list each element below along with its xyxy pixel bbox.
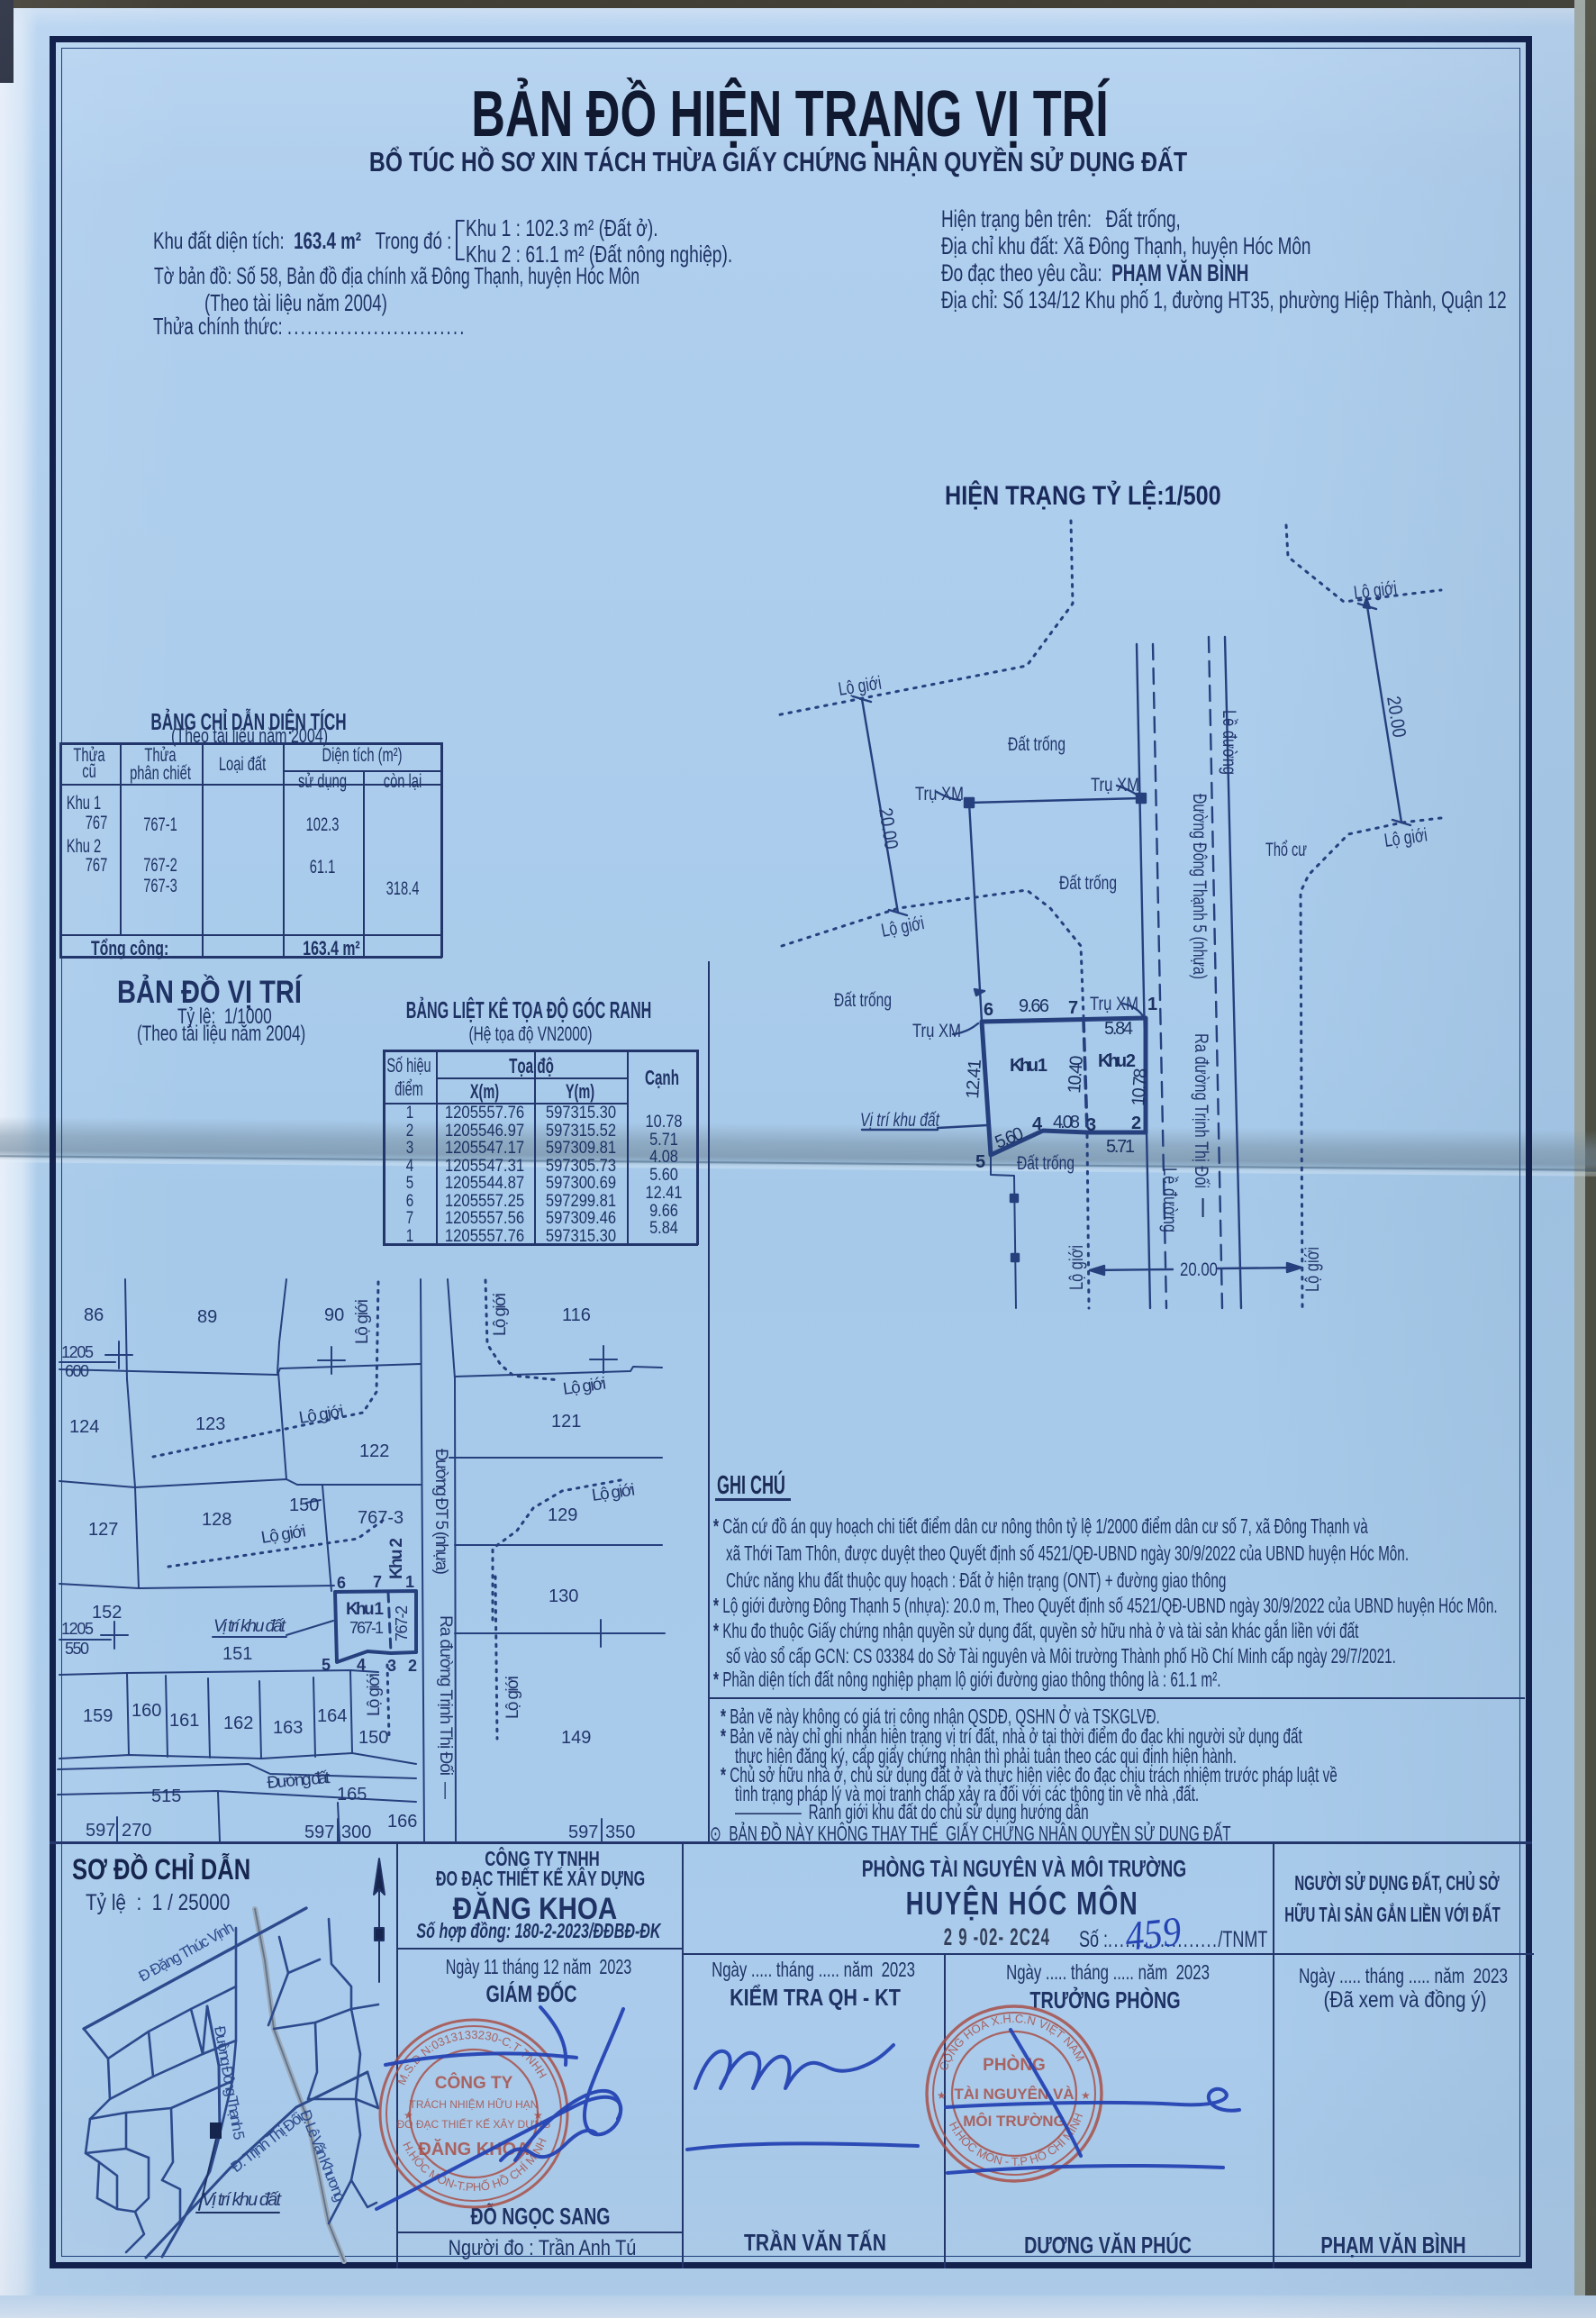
svg-text:4: 4 [357, 1656, 366, 1674]
svg-text:163: 163 [273, 1718, 303, 1738]
svg-text:Khu 1: Khu 1 [346, 1600, 384, 1619]
svg-text:Lộ giới: Lộ giới [353, 1299, 372, 1344]
svg-text:515: 515 [151, 1786, 181, 1806]
svg-text:597: 597 [568, 1823, 598, 1842]
svg-text:Khu 2: Khu 2 [1098, 1051, 1136, 1071]
svg-text:1205: 1205 [61, 1343, 94, 1361]
svg-text:—: — [1193, 1198, 1214, 1217]
svg-text:3: 3 [387, 1657, 396, 1675]
svg-text:128: 128 [202, 1510, 231, 1530]
svg-text:TÀI NGUYÊN VÀ: TÀI NGUYÊN VÀ [954, 2086, 1074, 2103]
svg-text:Khu 1: Khu 1 [1010, 1056, 1047, 1076]
svg-text:Lộ giới: Lộ giới [880, 913, 927, 941]
svg-text:129: 129 [548, 1505, 577, 1525]
svg-text:Vị trí khu đất: Vị trí khu đất [213, 1617, 286, 1636]
svg-text:150: 150 [358, 1728, 388, 1748]
svg-text:12.41: 12.41 [963, 1059, 985, 1099]
svg-text:123: 123 [195, 1414, 225, 1434]
svg-text:Đất trống: Đất trống [1059, 873, 1117, 894]
svg-text:7: 7 [1068, 998, 1078, 1018]
svg-text:Trụ XM: Trụ XM [915, 784, 964, 804]
svg-text:124: 124 [69, 1417, 99, 1437]
svg-text:10.78: 10.78 [1129, 1068, 1151, 1106]
svg-text:Lộ giới: Lộ giới [365, 1673, 384, 1716]
svg-text:151: 151 [222, 1644, 252, 1664]
svg-text:767-2: 767-2 [393, 1605, 411, 1641]
svg-text:Đất trống: Đất trống [834, 990, 892, 1011]
svg-text:165: 165 [337, 1785, 367, 1804]
svg-text:5: 5 [975, 1152, 985, 1172]
svg-text:3: 3 [1086, 1115, 1096, 1135]
svg-text:10.40: 10.40 [1065, 1055, 1087, 1094]
svg-text:2: 2 [1131, 1114, 1141, 1133]
svg-text:116: 116 [562, 1305, 591, 1325]
svg-text:90: 90 [324, 1305, 344, 1325]
svg-text:Khu 2: Khu 2 [387, 1538, 406, 1579]
svg-text:★: ★ [404, 2109, 413, 2122]
svg-text:Lộ giới: Lộ giới [837, 673, 883, 700]
svg-text:164: 164 [317, 1706, 347, 1726]
svg-text:Đất trống: Đất trống [1017, 1153, 1075, 1174]
svg-text:Lộ giới: Lộ giới [1302, 1247, 1323, 1292]
svg-text:Ra đường Trịnh Thị Đối: Ra đường Trịnh Thị Đối [1191, 1033, 1211, 1188]
svg-text:5.60: 5.60 [993, 1123, 1027, 1152]
svg-text:Lộ giới: Lộ giới [1353, 577, 1398, 604]
svg-text:6: 6 [984, 1000, 993, 1020]
svg-text:4: 4 [1032, 1114, 1043, 1134]
svg-text:Trụ XM: Trụ XM [1091, 775, 1139, 795]
svg-text:1: 1 [1147, 995, 1157, 1014]
svg-text:1205: 1205 [61, 1620, 94, 1638]
svg-text:4.08: 4.08 [1053, 1113, 1080, 1132]
svg-text:600: 600 [65, 1362, 89, 1380]
svg-text:270: 270 [122, 1821, 151, 1841]
svg-text:597: 597 [86, 1821, 115, 1841]
svg-text:9.66: 9.66 [1019, 996, 1049, 1016]
svg-text:Lộ giới: Lộ giới [562, 1374, 607, 1398]
svg-text:130: 130 [549, 1586, 578, 1606]
svg-text:300: 300 [341, 1823, 371, 1842]
svg-text:—: — [436, 1782, 455, 1799]
svg-text:767-3: 767-3 [358, 1508, 404, 1528]
svg-text:7: 7 [373, 1573, 382, 1591]
svg-text:Lộ giới: Lộ giới [591, 1480, 636, 1504]
svg-text:152: 152 [92, 1603, 122, 1623]
svg-text:20.00: 20.00 [1180, 1259, 1218, 1280]
svg-text:166: 166 [387, 1812, 417, 1832]
svg-text:Vị trí khu đất: Vị trí khu đất [202, 2190, 282, 2210]
svg-text:160: 160 [131, 1701, 161, 1721]
svg-text:162: 162 [223, 1714, 253, 1733]
svg-text:5.84: 5.84 [1104, 1019, 1133, 1039]
svg-text:149: 149 [561, 1728, 591, 1748]
svg-text:159: 159 [83, 1706, 113, 1726]
svg-text:2: 2 [408, 1657, 417, 1675]
svg-text:89: 89 [197, 1307, 217, 1327]
svg-text:Lộ giới: Lộ giới [1066, 1245, 1087, 1290]
svg-text:Đ Đặng Thúc Vịnh: Đ Đặng Thúc Vịnh [136, 1919, 237, 1986]
svg-text:5: 5 [322, 1656, 331, 1674]
svg-text:Lộ giới: Lộ giới [297, 1402, 345, 1428]
svg-text:Đất trống: Đất trống [1008, 734, 1066, 755]
svg-text:767-1: 767-1 [349, 1619, 384, 1637]
svg-text:Lề đường: Lề đường [1219, 710, 1239, 775]
svg-text:150: 150 [289, 1495, 319, 1515]
svg-text:CÔNG TY: CÔNG TY [435, 2073, 513, 2093]
svg-text:★: ★ [533, 2109, 543, 2122]
svg-text:1: 1 [405, 1573, 414, 1591]
svg-text:Đường đất: Đường đất [267, 1768, 331, 1793]
svg-text:Lộ giới: Lộ giới [1383, 824, 1428, 850]
svg-text:Đường Đông Thạnh 5 (nhựa): Đường Đông Thạnh 5 (nhựa) [1189, 794, 1210, 979]
svg-text:86: 86 [84, 1305, 104, 1325]
svg-text:TRÁCH NHIỆM HỮU HẠN: TRÁCH NHIỆM HỮU HẠN [410, 2097, 539, 2111]
svg-text:122: 122 [359, 1441, 389, 1461]
svg-text:6: 6 [337, 1574, 346, 1592]
svg-text:Ra đường Trịnh Thị Đối: Ra đường Trịnh Thị Đối [436, 1615, 455, 1776]
svg-text:350: 350 [605, 1823, 635, 1842]
svg-text:★: ★ [937, 2089, 947, 2102]
svg-text:Trụ XM: Trụ XM [1090, 994, 1138, 1014]
svg-text:MÔI TRƯỜNG: MÔI TRƯỜNG [963, 2113, 1066, 2130]
svg-text:161: 161 [169, 1711, 199, 1731]
svg-text:5.71: 5.71 [1106, 1137, 1135, 1157]
svg-text:20.00: 20.00 [875, 806, 902, 850]
svg-text:Đường ĐT 5 (nhựa): Đường ĐT 5 (nhựa) [431, 1449, 450, 1575]
svg-text:Lề đường: Lề đường [1159, 1168, 1180, 1232]
svg-text:Trụ XM: Trụ XM [912, 1021, 961, 1041]
svg-text:121: 121 [551, 1412, 581, 1432]
svg-text:459: 459 [1123, 1908, 1183, 1959]
svg-text:Lộ giới: Lộ giới [259, 1522, 307, 1548]
svg-text:★: ★ [1081, 2089, 1091, 2102]
svg-text:Vị trí khu đất: Vị trí khu đất [860, 1110, 940, 1131]
svg-text:Lộ giới: Lộ giới [491, 1293, 510, 1336]
svg-text:550: 550 [65, 1640, 89, 1658]
svg-text:Lộ giới: Lộ giới [503, 1676, 522, 1719]
svg-text:127: 127 [88, 1520, 118, 1540]
svg-text:597: 597 [304, 1823, 334, 1842]
svg-text:Thổ cư: Thổ cư [1265, 840, 1307, 860]
